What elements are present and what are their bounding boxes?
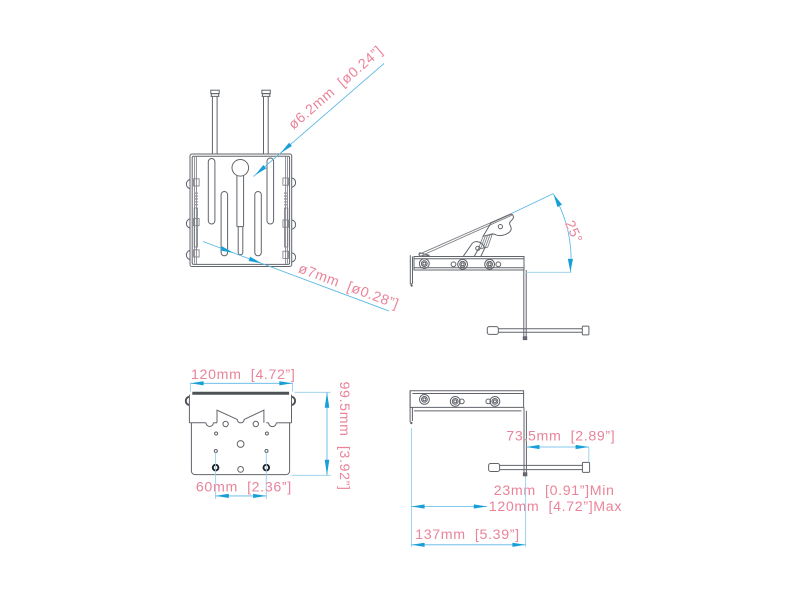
svg-text:23mm [0.91”]Min: 23mm [0.91”]Min	[494, 483, 615, 499]
svg-text:99.5mm [3.92”]: 99.5mm [3.92”]	[336, 382, 352, 491]
svg-text:120mm [4.72”]: 120mm [4.72”]	[191, 367, 296, 383]
svg-text:137mm [5.39”]: 137mm [5.39”]	[415, 527, 520, 543]
svg-text:120mm [4.72”]Max: 120mm [4.72”]Max	[489, 499, 622, 515]
svg-text:73.5mm [2.89”]: 73.5mm [2.89”]	[506, 428, 615, 444]
svg-text:ø7mm [ø0.28”]: ø7mm [ø0.28”]	[296, 261, 401, 313]
svg-text:60mm [2.36”]: 60mm [2.36”]	[196, 480, 292, 496]
svg-text:ø6.2mm [ø0.24”]: ø6.2mm [ø0.24”]	[286, 43, 387, 133]
svg-text:25°: 25°	[561, 218, 585, 246]
